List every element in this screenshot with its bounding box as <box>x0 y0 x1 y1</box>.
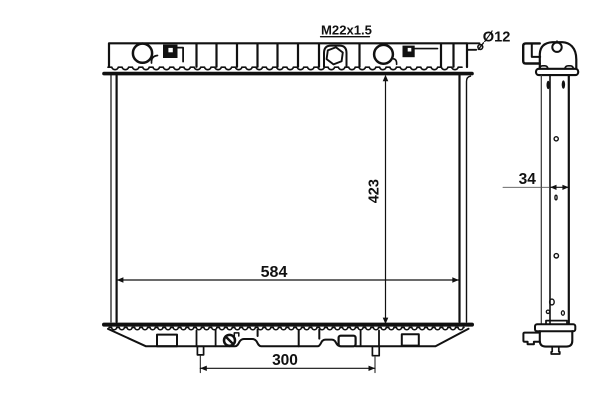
svg-text:M22x1.5: M22x1.5 <box>321 22 372 37</box>
svg-text:Ø12: Ø12 <box>483 29 511 45</box>
svg-text:300: 300 <box>272 352 298 369</box>
svg-text:423: 423 <box>367 179 383 203</box>
svg-text:584: 584 <box>261 264 288 281</box>
svg-text:34: 34 <box>519 171 537 188</box>
